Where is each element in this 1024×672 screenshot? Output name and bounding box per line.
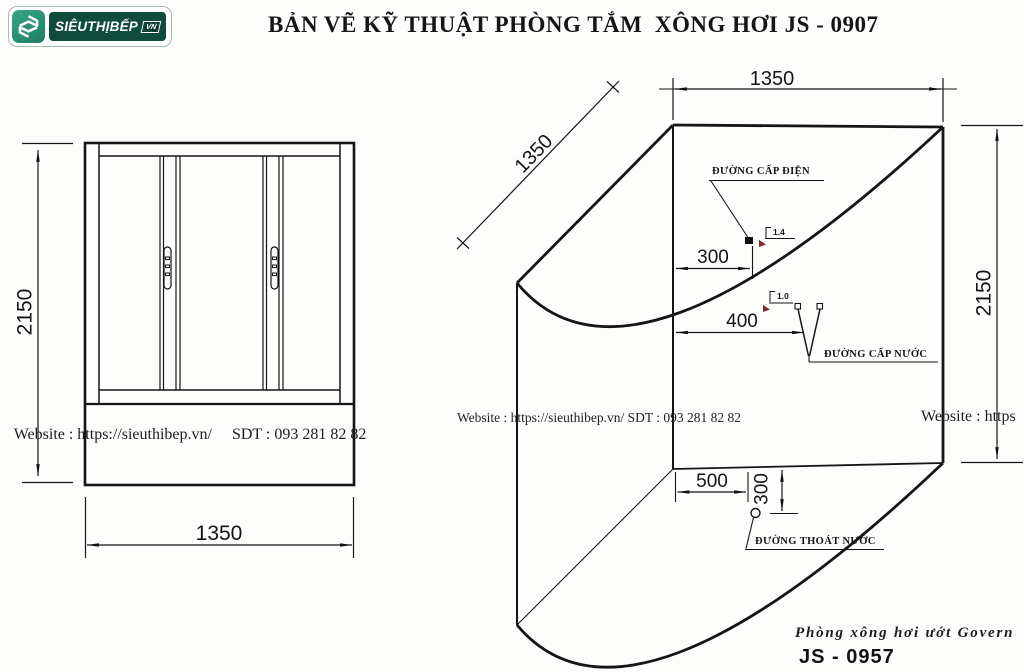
front-view-dimensions (22, 144, 354, 559)
iso-top-dimension (659, 78, 957, 122)
logo-vn-tag: VN (141, 21, 162, 33)
product-line-text: Phòng xông hơi ướt Govern (795, 625, 1014, 642)
logo-brand-text: SIÊUTHỊBẾP (55, 19, 138, 34)
iso-view (517, 125, 943, 667)
drain-label: ĐƯỜNG THOÁT NƯỚC (755, 535, 876, 547)
water-offset-dim: 400 (726, 311, 758, 332)
water-note: 1.0 (777, 291, 789, 301)
model-code-text: JS - 0957 (799, 646, 895, 669)
top-curved-rim (517, 127, 943, 327)
hex-s-icon (15, 13, 42, 40)
iso-depth-dim: 1350 (511, 130, 558, 177)
top-back-right-edge (673, 125, 943, 127)
front-width-dim: 1350 (196, 522, 243, 545)
watermark-center: Website : https://sieuthibep.vn/ SDT : 0… (457, 410, 741, 426)
door-handle-right (271, 247, 278, 289)
front-height-dim: 2150 (14, 289, 37, 336)
bottom-back-right-edge (673, 463, 943, 469)
sieuthibep-logo: SIÊUTHỊBẾP VN (8, 6, 172, 47)
iso-width-dim: 1350 (750, 68, 795, 90)
watermark-left: Website : https://sieuthibep.vn/SDT : 09… (6, 408, 366, 444)
water-label: ĐƯỜNG CẤP NƯỚC (824, 347, 927, 360)
electric-label: ĐƯỜNG CẤP ĐIỆN (712, 164, 810, 177)
drain-offset-x-dim: 500 (696, 471, 728, 492)
note-arrow-mark (759, 240, 766, 247)
page-title: BẢN VẼ KỸ THUẬT PHÒNG TẮM XÔNG HƠI JS - … (268, 12, 858, 38)
sieuthibep-logo-icon (12, 10, 45, 43)
electric-note: 1.4 (773, 227, 785, 237)
note-arrow-mark (763, 305, 770, 312)
water-point-marker (817, 304, 823, 310)
water-point-marker (795, 304, 801, 310)
iso-height-dim: 2150 (973, 270, 996, 317)
drain-point-marker (751, 509, 760, 518)
floor-diagonal-edge (517, 469, 673, 625)
sliding-door-panels (160, 156, 283, 390)
logo-text-panel: SIÊUTHỊBẾP VN (49, 12, 166, 41)
technical-drawing: 2150 1350 1350 1350 2150 (0, 0, 1024, 672)
electric-point-marker (745, 237, 753, 244)
electric-offset-dim: 300 (697, 247, 729, 268)
door-handle-left (164, 247, 171, 289)
watermark-website: Website : https://sieuthibep.vn/ (14, 426, 212, 443)
drain-offset-y-dim: 300 (752, 473, 773, 505)
watermark-phone: SDT : 093 281 82 82 (232, 426, 366, 443)
watermark-right: Website : https (921, 408, 1016, 426)
